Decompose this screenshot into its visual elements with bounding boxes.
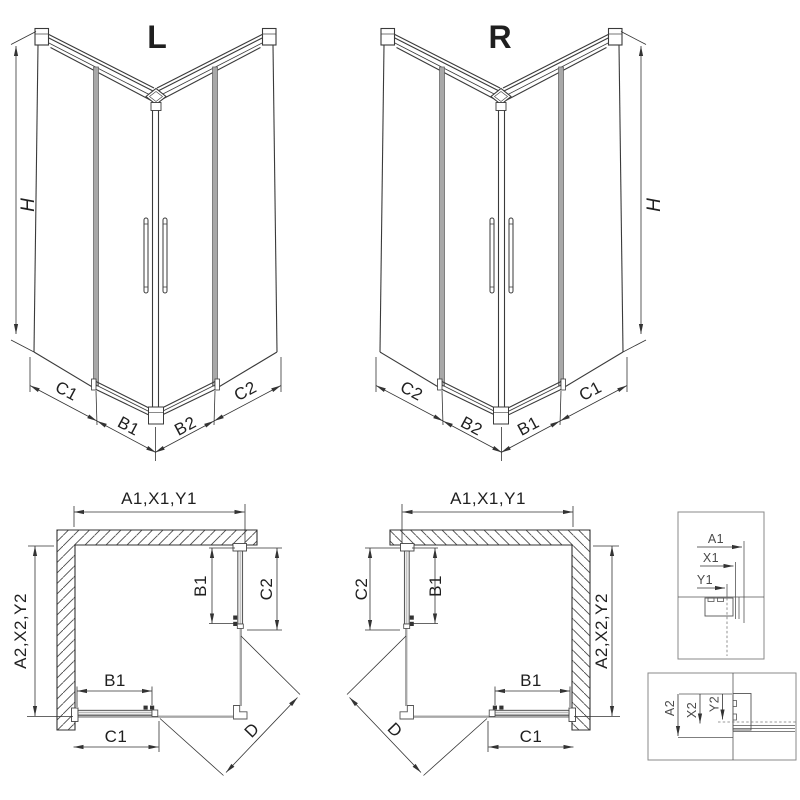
- dim-label-depth: A2,X2,Y2: [592, 593, 611, 669]
- shower-enclosure-diagram: L H C1 B1 B2 C2 R H C2 B2 B1 C1 A1,X1,Y1…: [0, 0, 800, 800]
- dim-label-fixed-bottom: C1: [105, 727, 128, 746]
- detail-label-y1: Y1: [697, 573, 713, 587]
- dim-label-fixed-side: C2: [352, 578, 371, 601]
- detail-box-bottom: A2 X2 Y2: [648, 673, 797, 760]
- dim-label-h: H: [18, 198, 39, 212]
- dim-label-door-bottom: B1: [520, 671, 542, 690]
- dim-label-door-side: B1: [191, 575, 210, 597]
- diagram-canvas: L H C1 B1 B2 C2 R H C2 B2 B1 C1 A1,X1,Y1…: [0, 0, 800, 800]
- detail-label-a1: A1: [708, 532, 724, 546]
- detail-label-x1: X1: [703, 551, 719, 565]
- dim-label-depth: A2,X2,Y2: [11, 593, 30, 669]
- dim-label-door-bottom: B1: [104, 671, 126, 690]
- dim-label-width: A1,X1,Y1: [121, 489, 197, 508]
- dim-label-h: H: [644, 198, 665, 212]
- detail-label-x2: X2: [685, 702, 699, 718]
- variant-label-l: L: [147, 19, 167, 55]
- variant-label-r: R: [488, 19, 511, 55]
- dim-label-fixed-bottom: C1: [520, 727, 543, 746]
- detail-box-top: A1 X1 Y1: [678, 512, 764, 659]
- dim-label-width: A1,X1,Y1: [450, 489, 526, 508]
- dim-label-door-side: B1: [426, 575, 445, 597]
- dim-label-fixed-side: C2: [257, 578, 276, 601]
- detail-label-y2: Y2: [708, 696, 722, 712]
- detail-label-a2: A2: [663, 700, 677, 716]
